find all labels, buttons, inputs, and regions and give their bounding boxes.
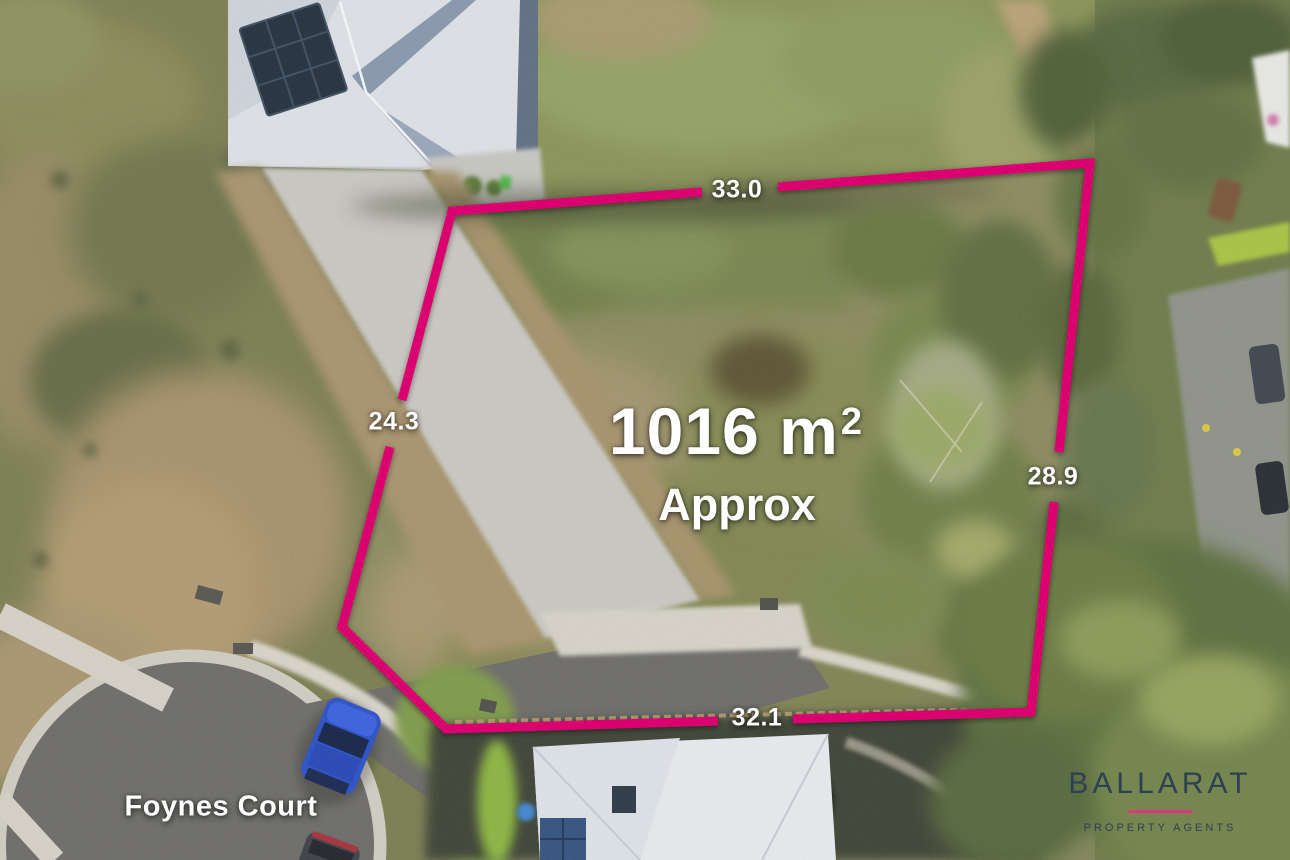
aerial-photo: 33.0 24.3 28.9 32.1 1016 m2 Approx Foyne… (0, 0, 1290, 860)
area-qualifier: Approx (658, 479, 816, 531)
street-name-label: Foynes Court (125, 791, 318, 824)
dimension-label-top: 33.0 (712, 176, 763, 205)
logo-divider (1128, 810, 1192, 813)
area-label: 1016 m2 (609, 393, 863, 469)
logo-tagline-text: PROPERTY AGENTS (1068, 823, 1251, 834)
logo-brand-text: BALLARAT (1068, 769, 1251, 799)
agency-logo: BALLARAT PROPERTY AGENTS (1068, 769, 1251, 834)
area-superscript: 2 (841, 400, 863, 443)
dimension-label-left: 24.3 (369, 408, 420, 437)
dimension-label-right: 28.9 (1028, 463, 1079, 492)
dimension-label-bottom: 32.1 (732, 704, 783, 733)
area-value: 1016 m (609, 394, 839, 468)
